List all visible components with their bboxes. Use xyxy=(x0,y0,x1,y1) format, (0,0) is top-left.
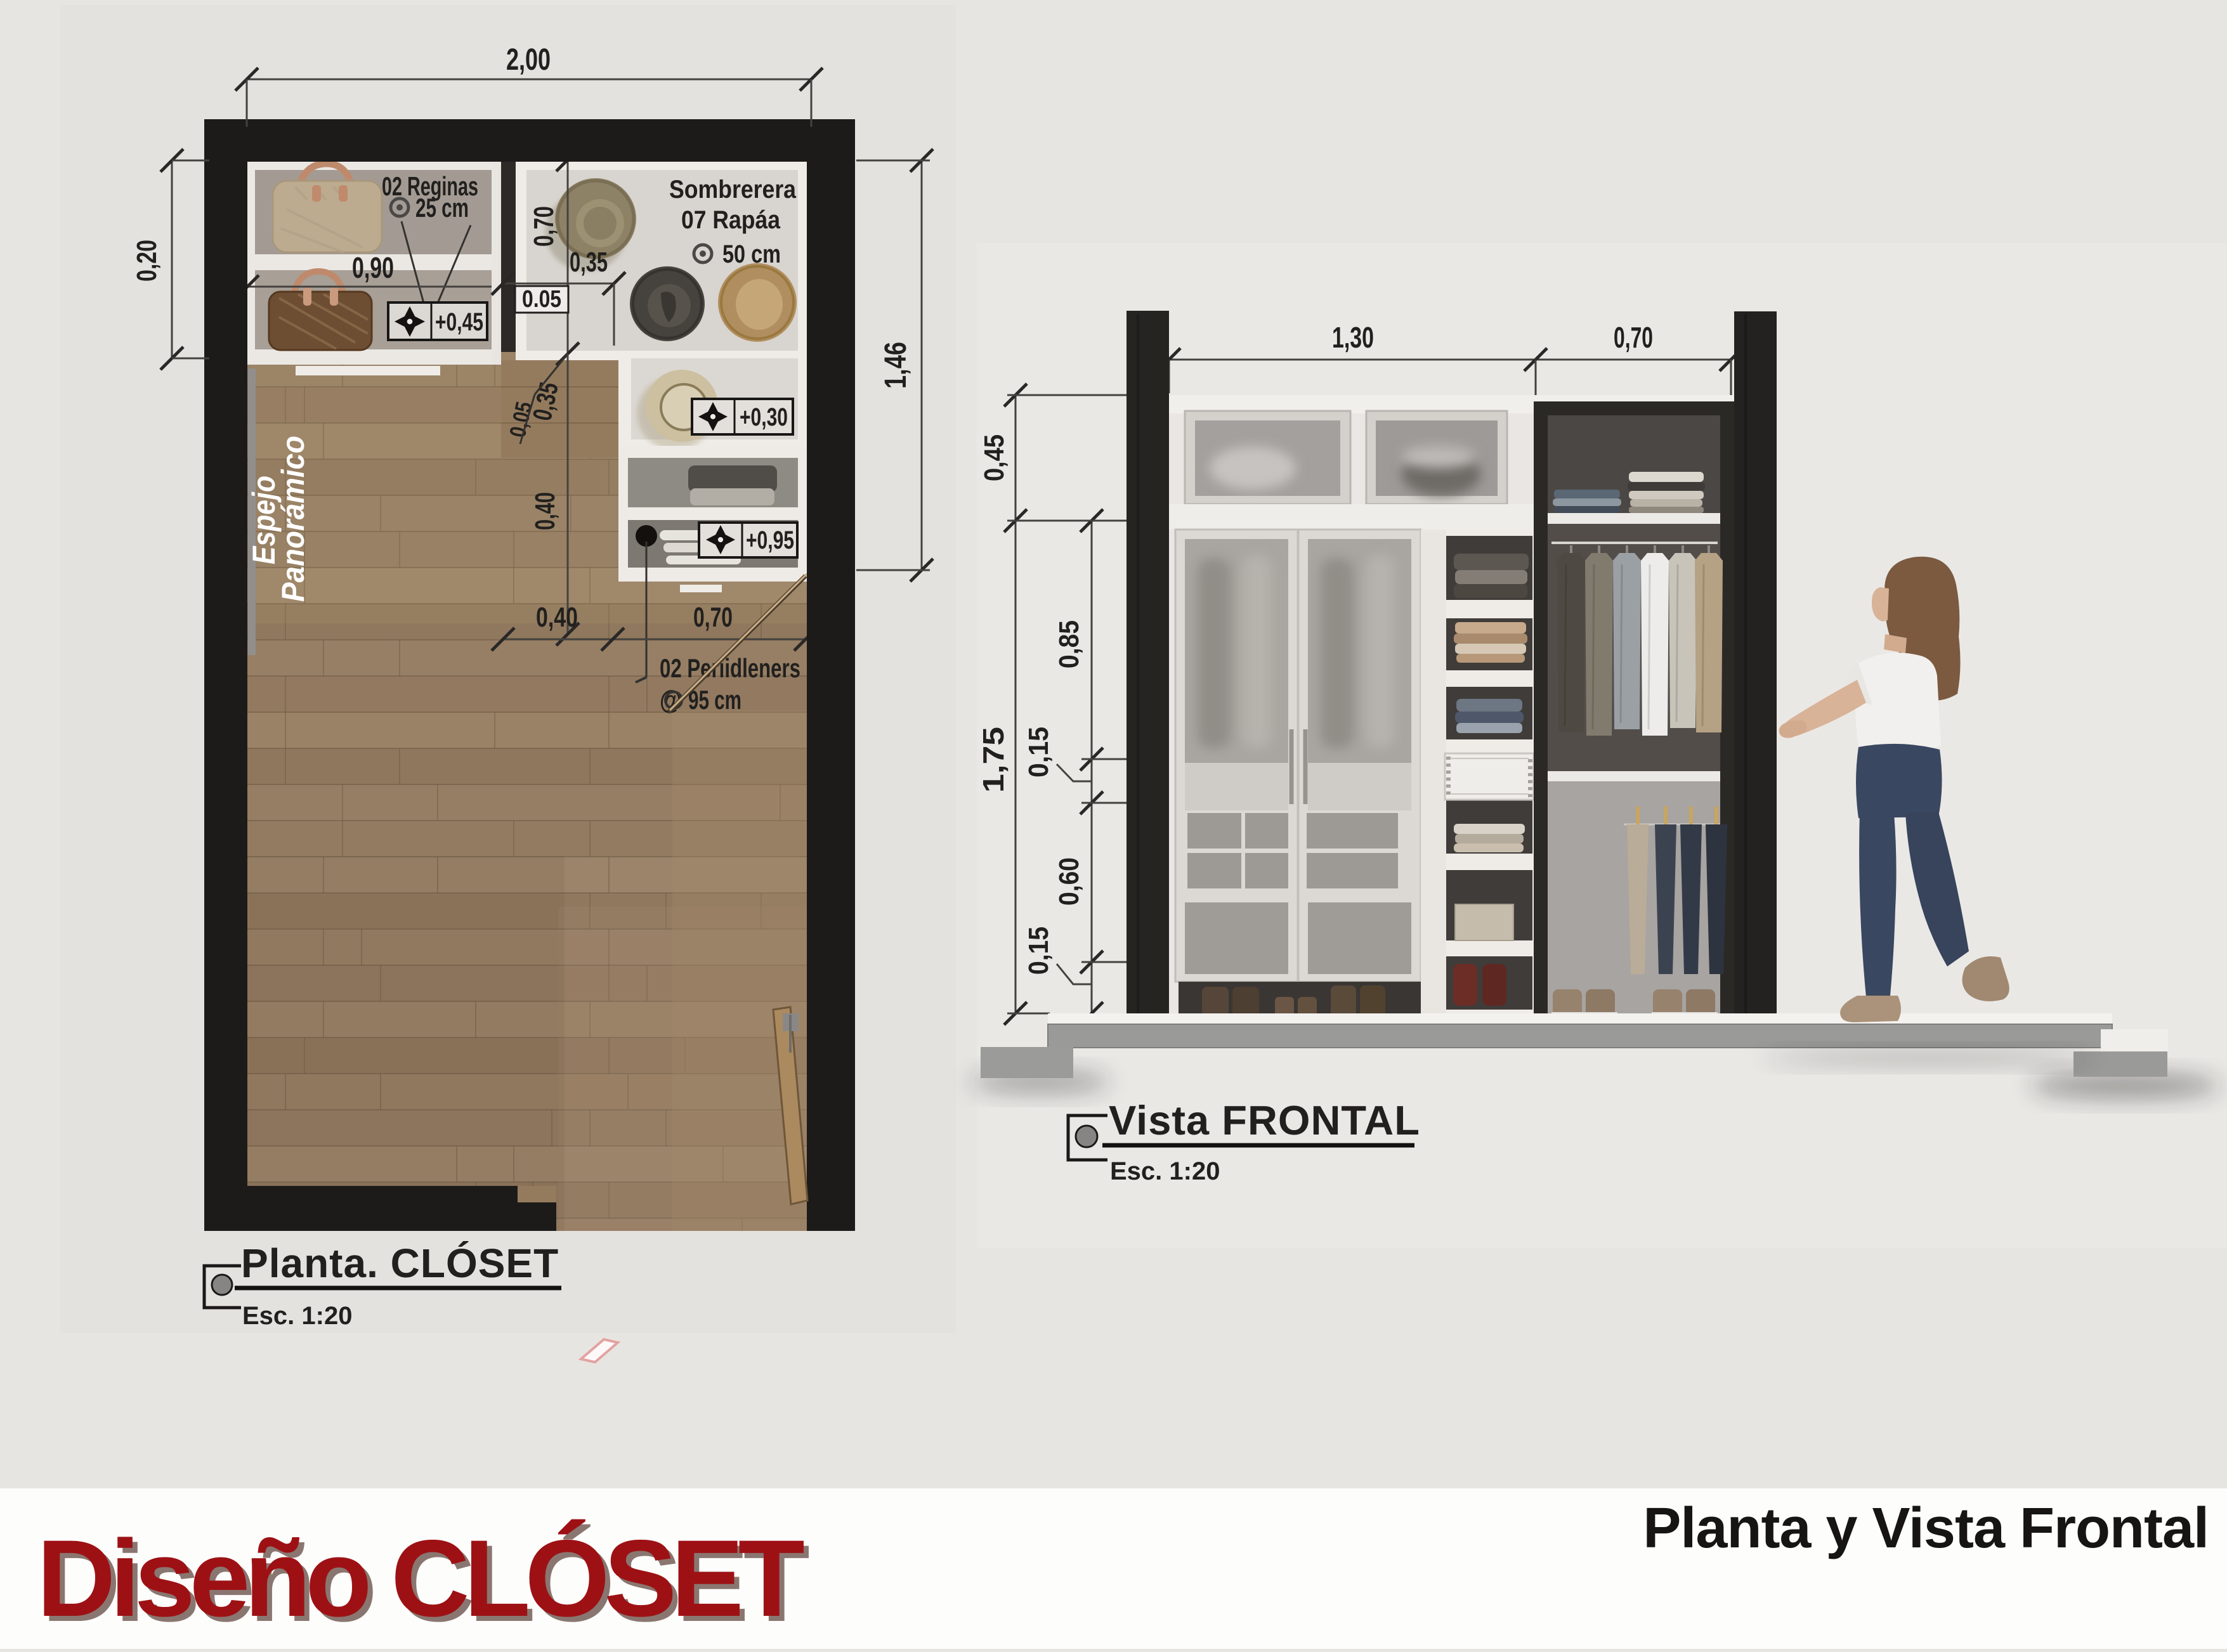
svg-text:Esc. 1:20: Esc. 1:20 xyxy=(242,1302,352,1330)
svg-text:Vista FRONTAL: Vista FRONTAL xyxy=(1109,1097,1420,1143)
svg-text:0,35: 0,35 xyxy=(570,247,608,278)
svg-text:0,20: 0,20 xyxy=(131,240,162,282)
svg-text:0,15: 0,15 xyxy=(1023,727,1054,777)
svg-text:0,70: 0,70 xyxy=(1614,321,1653,354)
svg-text:0.05: 0.05 xyxy=(522,286,561,313)
svg-text:95 cm: 95 cm xyxy=(688,685,741,715)
svg-text:02 Periidleners: 02 Periidleners xyxy=(660,653,800,683)
svg-text:07 Rapáa: 07 Rapáa xyxy=(681,206,781,234)
svg-text:0,70: 0,70 xyxy=(693,602,733,633)
svg-text:0,70: 0,70 xyxy=(528,206,559,247)
svg-text:1,46: 1,46 xyxy=(879,342,913,389)
svg-text:1,30: 1,30 xyxy=(1332,321,1374,354)
svg-text:Sombrerera: Sombrerera xyxy=(669,176,797,204)
svg-text:2,00: 2,00 xyxy=(506,43,551,77)
svg-text:0,40: 0,40 xyxy=(530,492,561,530)
svg-text:Panorámico: Panorámico xyxy=(275,436,311,602)
svg-text:1,75: 1,75 xyxy=(977,727,1010,793)
svg-text:Planta. CLÓSET: Planta. CLÓSET xyxy=(241,1240,559,1286)
svg-text:0,85: 0,85 xyxy=(1054,620,1085,668)
svg-text:0,45: 0,45 xyxy=(979,434,1010,481)
svg-text:0,90: 0,90 xyxy=(352,251,394,284)
svg-text:0,60: 0,60 xyxy=(1054,857,1085,906)
svg-text:Diseño CLÓSET: Diseño CLÓSET xyxy=(37,1518,804,1639)
svg-text:25 cm: 25 cm xyxy=(415,193,469,223)
svg-text:+0,95: +0,95 xyxy=(746,526,794,554)
svg-text:0,40: 0,40 xyxy=(536,602,578,633)
svg-text:Planta y Vista Frontal: Planta y Vista Frontal xyxy=(1643,1497,2209,1560)
svg-text:+0,45: +0,45 xyxy=(435,308,483,336)
svg-text:Esc. 1:20: Esc. 1:20 xyxy=(1110,1157,1220,1185)
svg-text:+0,30: +0,30 xyxy=(740,403,788,431)
svg-text:50 cm: 50 cm xyxy=(722,240,781,268)
svg-text:0,15: 0,15 xyxy=(1023,927,1054,975)
